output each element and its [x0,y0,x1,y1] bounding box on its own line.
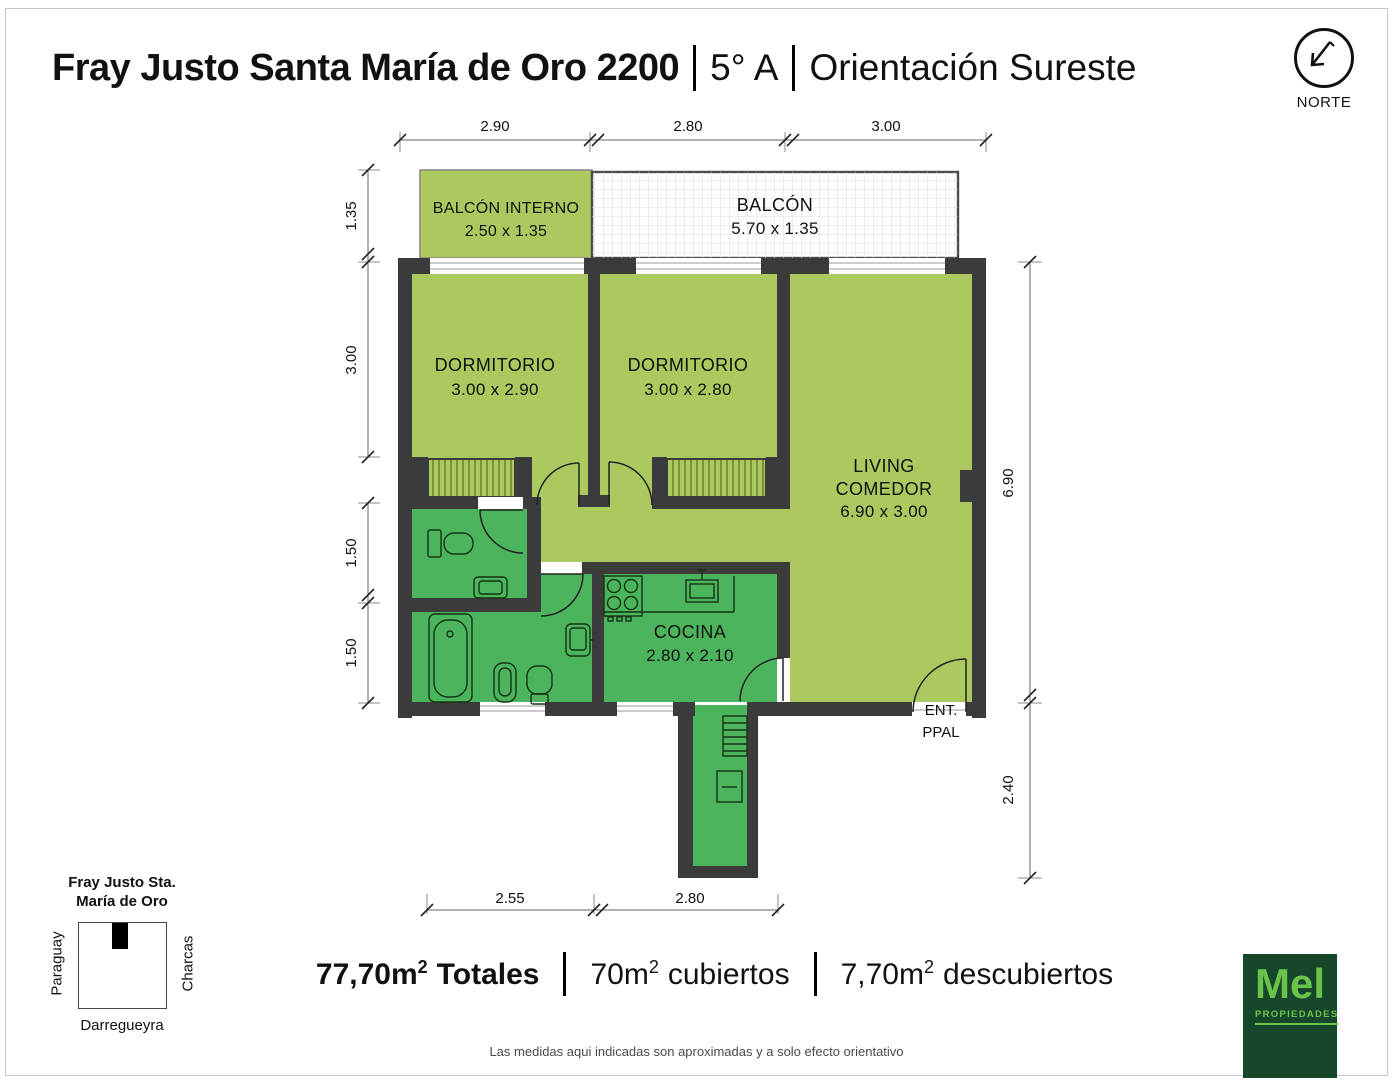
page-title: Fray Justo Santa María de Oro 2200 5° A … [52,40,1136,96]
dim-bottom-2: 2.80 [675,890,704,907]
dim-right-2: 2.40 [1000,775,1017,804]
label-dormitorio-1: DORMITORIO [435,355,556,375]
compass: NORTE [1284,28,1364,111]
size-dormitorio-1: 3.00 x 2.90 [451,380,538,399]
closet-dormitorio-2 [667,459,766,497]
map-title: Fray Justo Sta. María de Oro [42,874,202,912]
uncovered-surface: 7,70m2descubiertos [841,957,1114,992]
label-balcon: BALCÓN [737,194,813,215]
dim-right-1: 6.90 [1000,468,1017,497]
dim-top-1: 2.90 [480,118,509,135]
size-cocina: 2.80 x 2.10 [646,646,733,665]
street-darregueyra: Darregueyra [52,1017,192,1034]
surface-totals: 77,70m2Totales 70m2cubiertos 7,70m2descu… [18,952,1393,996]
size-living: 6.90 x 3.00 [840,502,927,521]
label-living-2: COMEDOR [836,479,933,499]
title-separator [792,45,795,91]
label-cocina: COCINA [654,622,726,642]
label-living-1: LIVING [853,456,914,476]
dim-left-1: 1.35 [343,201,360,230]
covered-surface: 70m2cubiertos [590,957,789,992]
closet-dormitorio-1 [428,459,515,497]
service-corridor [693,700,747,866]
title-separator [693,45,696,91]
total-surface: 77,70m2Totales [316,957,540,992]
dim-left-4: 1.50 [343,638,360,667]
totals-separator [814,952,817,996]
label-entrada-1: ENT. [925,702,958,719]
title-orientation: Orientación Sureste [809,47,1136,89]
logo-subtitle: PROPIEDADES [1255,1009,1338,1025]
label-entrada-2: PPAL [922,724,959,741]
brand-logo: Mel PROPIEDADES [1243,954,1337,1078]
map-title-line1: Fray Justo Sta. [42,874,202,893]
north-label: NORTE [1284,94,1364,111]
label-dormitorio-2: DORMITORIO [628,355,749,375]
building-marker [112,923,128,949]
logo-name: Mel [1255,964,1337,1004]
title-address: Fray Justo Santa María de Oro 2200 [52,47,679,90]
map-title-line2: María de Oro [42,893,202,912]
dim-bottom-1: 2.55 [495,890,524,907]
label-balcon-interno: BALCÓN INTERNO [433,198,579,217]
dim-top-3: 3.00 [871,118,900,135]
disclaimer-text: Las medidas aqui indicadas son aproximad… [0,1044,1393,1059]
title-unit: 5° A [710,47,778,89]
dim-left-3: 1.50 [343,538,360,567]
north-arrow-icon [1294,28,1354,88]
balcon-tile-grid [592,172,958,258]
size-balcon-interno: 2.50 x 1.35 [465,223,547,240]
size-balcon: 5.70 x 1.35 [731,219,818,238]
dim-left-2: 3.00 [343,345,360,374]
totals-separator [563,952,566,996]
size-dormitorio-2: 3.00 x 2.80 [644,380,731,399]
dim-top-2: 2.80 [673,118,702,135]
floor-plan: 2.90 2.80 3.00 1.35 3.00 1.50 1.50 6.90 … [330,100,1050,920]
